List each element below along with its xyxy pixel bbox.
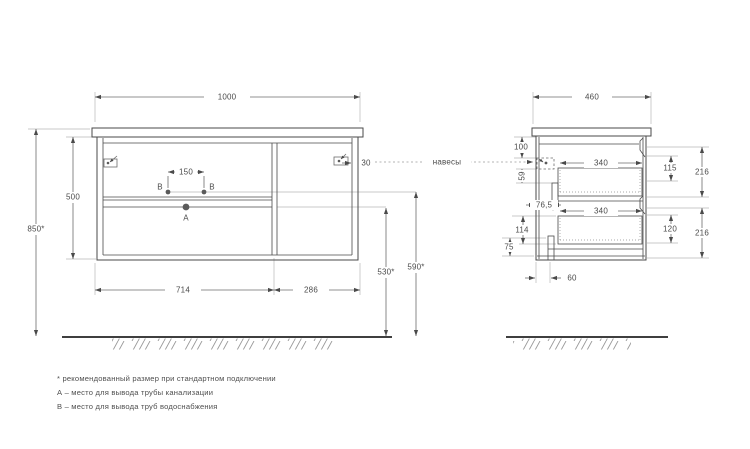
dim-side-width-label: 460 — [585, 93, 599, 102]
footnote-point-b: B – место для вывода труб водоснабжения — [57, 400, 276, 414]
dim-bracket-gap-label: 59 — [518, 171, 527, 181]
dim-front-inset-label: 76,5 — [536, 201, 553, 210]
dim-bottom-gap-label: 75 — [504, 243, 514, 252]
front-view: B B A 150 1000 500 850* 714 286 530* 590… — [19, 91, 533, 336]
floor-hatch-front — [112, 339, 334, 350]
dim-front-lower-label: 216 — [695, 229, 709, 238]
floor — [62, 337, 668, 350]
dim-b-span-label: 150 — [179, 168, 193, 177]
hanger-bracket-left-icon — [104, 156, 117, 167]
drawing-canvas: B B A 150 1000 500 850* 714 286 530* 590… — [0, 0, 750, 449]
footnote-recommended-size: * рекомендованный размер при стандартном… — [57, 372, 276, 386]
dim-total-height-label: 850* — [27, 225, 44, 234]
dim-inner-upper-label: 115 — [663, 164, 677, 173]
dim-front-width-label: 1000 — [218, 93, 237, 102]
lower-drawer — [548, 216, 643, 260]
dim-lower-depth-label: 340 — [594, 207, 608, 216]
dim-right-section-label: 286 — [304, 286, 318, 295]
upper-drawer — [552, 168, 643, 203]
dim-supply-height-label: 590* — [407, 263, 424, 272]
dim-inner-lower-label: 120 — [663, 225, 677, 234]
supply-point-b-right — [202, 190, 207, 195]
floor-hatch-side — [513, 339, 631, 350]
dim-left-section-label: 714 — [176, 286, 190, 295]
side-view: 460 100 59 76,5 340 340 115 216 120 216 — [501, 91, 715, 283]
dim-upper-depth-label: 340 — [594, 159, 608, 168]
hangers-label: навесы — [433, 158, 461, 167]
drain-point-a — [183, 204, 190, 211]
point-b-right-label: B — [209, 183, 215, 192]
dim-top-offset-label: 100 — [514, 143, 528, 152]
supply-point-b-left — [166, 190, 171, 195]
point-a-label: A — [183, 214, 189, 223]
footnote-point-a: А – место для вывода трубы канализации — [57, 386, 276, 400]
dim-recess-label: 60 — [567, 274, 577, 283]
dim-front-height-label: 500 — [66, 193, 80, 202]
footnotes: * рекомендованный размер при стандартном… — [57, 372, 276, 414]
point-b-left-label: B — [157, 183, 163, 192]
dim-bracket-offset-label: 30 — [361, 159, 371, 168]
hanger-bracket-side-icon — [537, 158, 554, 169]
dim-front-upper-label: 216 — [695, 168, 709, 177]
dim-drain-height-label: 530* — [377, 268, 394, 277]
dim-lower-inset-label: 114 — [515, 226, 529, 235]
